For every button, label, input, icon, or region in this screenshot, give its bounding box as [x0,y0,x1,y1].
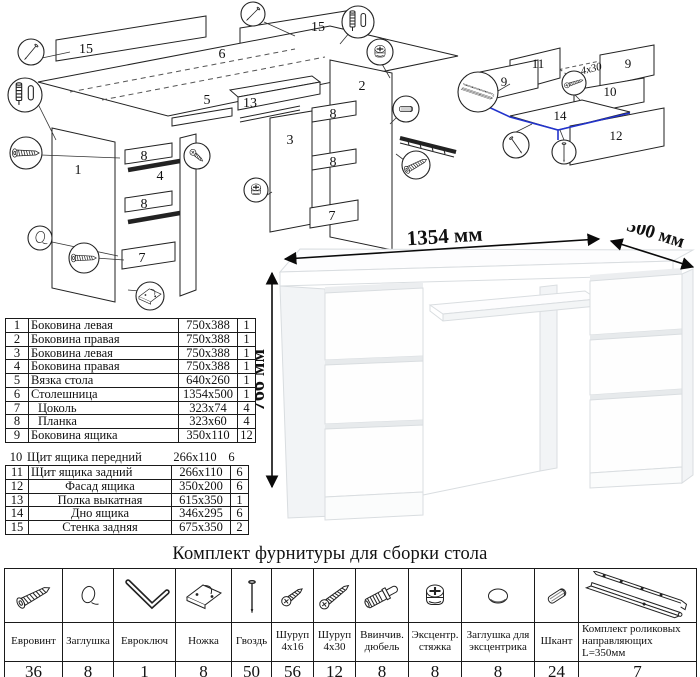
part-label-1: 1 [75,163,82,178]
parts-row: 2 Боковина правая 750x388 1 [6,332,256,346]
part-label-14: 14 [554,108,568,123]
hardware-name: Заглушка [63,623,114,662]
part-size: 615x350 [172,493,231,507]
hardware-kit-title: Комплект фурнитуры для сборки стола [0,544,660,565]
hardware-qty: 8 [63,661,114,677]
part-name: Щит ящика передний [27,450,167,465]
pedestal-base [325,492,423,520]
plinth [122,242,175,269]
part-name: Дно ящика [29,507,172,521]
nail-icon [232,569,272,623]
part-num: 15 [6,521,29,535]
part-qty: 1 [238,360,256,374]
plank [125,143,172,164]
parts-row-10: 10 Щит ящика передний 266x110 6 [5,450,242,465]
part-label-8: 8 [330,155,337,170]
part-num: 6 [6,387,29,401]
part-qty: 1 [238,374,256,388]
parts-row: 14 Дно ящика 346x295 6 [6,507,249,521]
part-qty: 2 [231,521,249,535]
part-label-5: 5 [204,93,211,108]
parts-row: 5 Вязка стола 640x260 1 [6,374,256,388]
part-name: Планка [29,415,179,429]
part-num: 13 [6,493,29,507]
drawer-front [590,334,682,395]
part-size: 346x295 [172,507,231,521]
part-name: Вязка стола [29,374,179,388]
part-num: 3 [6,346,29,360]
hardware-name: Евровинт [5,623,63,662]
parts-row: 4 Боковина правая 750x388 1 [6,360,256,374]
part-name: Боковина левая [29,319,179,333]
part-label-2: 2 [359,79,366,94]
hardware-qty: 12 [314,661,356,677]
leg-icon [176,569,232,623]
part-qty: 1 [238,319,256,333]
part-qty: 6 [231,479,249,493]
part-num: 11 [6,466,29,480]
part-label-12: 12 [610,128,623,143]
part-num: 5 [6,374,29,388]
part-label-13: 13 [243,96,257,111]
part-name: Боковина правая [29,360,179,374]
screwin-dowel-icon [356,569,409,623]
part-qty: 4 [238,401,256,415]
part-qty: 1 [238,346,256,360]
hardware-qty: 8 [409,661,462,677]
part-name: Боковина левая [29,346,179,360]
hardware-qty: 56 [272,661,314,677]
part-label-7: 7 [139,251,146,266]
part-label-15: 15 [311,20,325,35]
hardware-name: Заглушка для эксцентрика [462,623,535,662]
parts-row: 9 Боковина ящика 350x110 12 [6,429,256,443]
callout-roller-guide [458,72,498,112]
parts-row: 3 Боковина левая 750x388 1 [6,346,256,360]
hardware-name: Эксцентр. стяжка [409,623,462,662]
parts-row: 11 Щит ящика задний 266x110 6 [6,466,249,480]
part-num: 4 [6,360,29,374]
cam-cap-icon [462,569,535,623]
part-size: 1354x500 [179,387,238,401]
cap-icon [63,569,114,623]
part-num: 1 [6,319,29,333]
hardware-name: Гвоздь [232,623,272,662]
part-size: 323x60 [179,415,238,429]
parts-row: 8 Планка 323x60 4 [6,415,256,429]
part-qty: 6 [231,466,249,480]
hardware-name: Ножка [176,623,232,662]
part-size: 675x350 [172,521,231,535]
hardware-name: Шкант [535,623,579,662]
part-label-8: 8 [330,107,337,122]
part-num: 2 [6,332,29,346]
part-qty: 1 [238,387,256,401]
drawer-front [590,394,682,473]
part-qty: 4 [238,415,256,429]
hardware-qty: 8 [176,661,232,677]
part-label-8: 8 [141,197,148,212]
part-num: 8 [6,415,29,429]
part-size: 750x388 [179,332,238,346]
screw-long-icon [314,569,356,623]
hardware-qty: 36 [5,661,63,677]
part-label-9: 9 [625,56,632,71]
part-label-15: 15 [79,42,93,57]
drawer-front [325,425,423,497]
part-qty: 1 [238,332,256,346]
part-name: Щит ящика задний [29,466,172,480]
hardware-qty: 8 [356,661,409,677]
side-panel-left [52,128,115,302]
part-num: 7 [6,401,29,415]
hardware-qty: 1 [114,661,176,677]
part-size: 266x110 [172,466,231,480]
part-num: 9 [6,429,29,443]
hardware-icons-row [5,569,697,623]
part-label-3: 3 [287,133,294,148]
part-name: Цоколь [29,401,179,415]
part-name: Полка выкатная [29,493,172,507]
desk-right-side [682,269,693,483]
part-label-6: 6 [219,47,226,62]
part-size: 350x110 [179,429,238,443]
eccentric-cam-icon [409,569,462,623]
parts-row: 7 Цоколь 323x74 4 [6,401,256,415]
drawer-front [590,274,682,335]
height-dimension-label: 766 мм [255,349,269,411]
hardware-qty: 7 [579,661,697,677]
inner-right-wall [540,285,557,471]
part-name: Стенка задняя [29,521,172,535]
part-size: 323x74 [179,401,238,415]
part-size: 750x388 [179,346,238,360]
part-name: Фасад ящика [29,479,172,493]
hardware-qty: 50 [232,661,272,677]
part-qty: 6 [231,507,249,521]
part-name: Столешница [29,387,179,401]
part-name: Боковина ящика [29,429,179,443]
hardware-name: Ввинчив. дюбель [356,623,409,662]
part-size: 750x388 [179,319,238,333]
side-panel [270,111,312,232]
parts-table-upper: 1 Боковина левая 750x388 1 2 Боковина пр… [5,318,256,443]
part-label-9: 9 [501,74,508,89]
part-qty: 1 [231,493,249,507]
hardware-kit-table: Евровинт Заглушка Евроключ Ножка Гвоздь … [4,568,697,677]
dowel-icon [535,569,579,623]
screw-small-icon [272,569,314,623]
hex-key-icon [114,569,176,623]
part-size: 266x110 [167,450,223,465]
hardware-qty: 24 [535,661,579,677]
part-qty: 12 [238,429,256,443]
part-label-8: 8 [141,149,148,164]
hardware-name: Евроключ [114,623,176,662]
part-label-7: 7 [329,209,336,224]
hardware-name: Шуруп 4x16 [272,623,314,662]
hardware-name: Комплект роликовых направляющих L=350мм [579,623,697,662]
parts-table-lower: 11 Щит ящика задний 266x110 6 12 Фасад я… [5,465,249,535]
part-name: Боковина правая [29,332,179,346]
assembly-instruction-sheet: 15 6 15 5 13 1 8 4 8 7 3 2 8 8 7 [0,0,700,677]
parts-row: 15 Стенка задняя 675x350 2 [6,521,249,535]
part-num: 10 [5,450,27,465]
part-size: 750x388 [179,360,238,374]
roller-guides-icon [579,569,697,623]
drawer-front [325,288,423,360]
drawer-front [325,361,423,424]
part-label-4: 4 [157,169,164,184]
parts-row: 1 Боковина левая 750x388 1 [6,319,256,333]
desk-render: 1354 мм 500 мм 766 мм [255,225,700,545]
drawer-exploded-diagram: 11 9 9 10 14 12 4x30 [452,28,700,218]
part-label-11: 11 [532,56,545,71]
plank [125,191,172,212]
euroscrew-icon [5,569,63,623]
hardware-name: Шуруп 4x30 [314,623,356,662]
parts-row: 13 Полка выкатная 615x350 1 [6,493,249,507]
part-num: 14 [6,507,29,521]
parts-row: 12 Фасад ящика 350x200 6 [6,479,249,493]
part-label-10: 10 [604,84,617,99]
callout-dowel-cap [8,78,42,112]
part-size: 350x200 [172,479,231,493]
hardware-qty-row: 36 8 1 8 50 56 12 8 8 8 24 7 [5,661,697,677]
hardware-qty: 8 [462,661,535,677]
part-qty: 6 [223,450,240,465]
callout-dowel-cap [342,6,374,38]
parts-row: 6 Столешница 1354x500 1 [6,387,256,401]
part-num: 12 [6,479,29,493]
part-size: 640x260 [179,374,238,388]
hardware-names-row: Евровинт Заглушка Евроключ Ножка Гвоздь … [5,623,697,662]
